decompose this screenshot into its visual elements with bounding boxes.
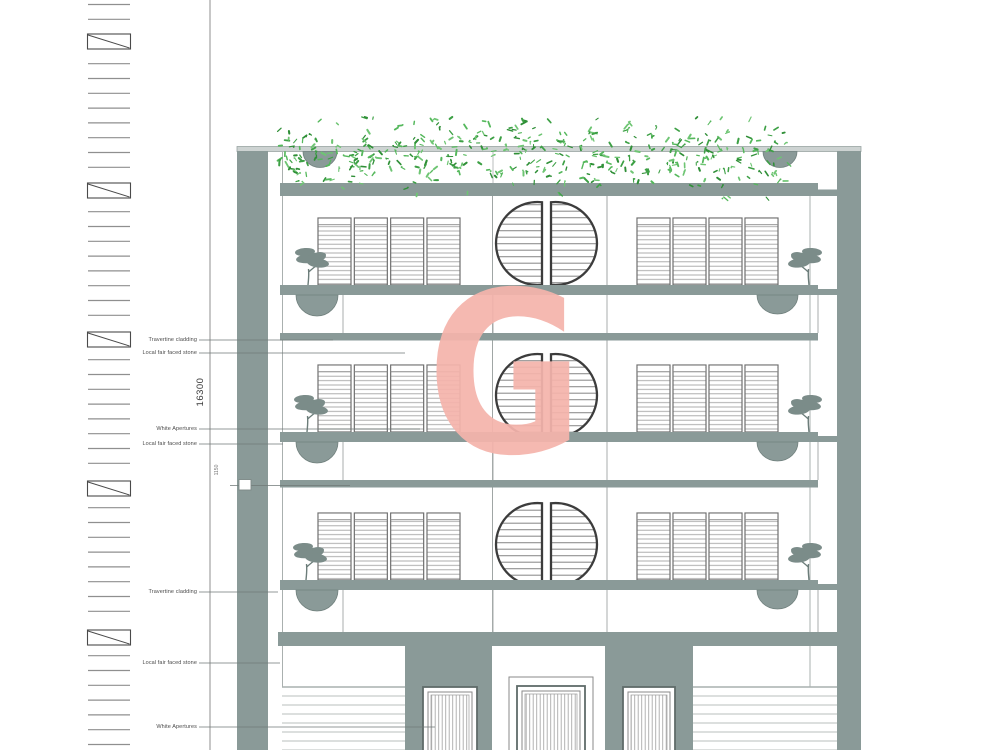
louvered-window (318, 513, 460, 580)
section-scale-ladder (88, 5, 131, 745)
shutter-panel (637, 365, 670, 432)
material-label: Travertine cladding (0, 589, 197, 595)
material-label: White Apertures (0, 426, 197, 432)
entrance-door (423, 687, 477, 750)
shutter-panel (745, 513, 778, 580)
entrance-door (623, 687, 675, 750)
balcony-tree (788, 542, 823, 580)
shutter-panel (709, 513, 742, 580)
shutter-panel (318, 365, 351, 432)
planter-bowl (296, 590, 338, 611)
shutter-panel (709, 218, 742, 285)
shutter-panel (709, 365, 742, 432)
detail-dimension: 1150 (214, 459, 222, 481)
balcony-tree (788, 247, 823, 285)
shutter-panel (637, 218, 670, 285)
louvered-window (637, 365, 778, 432)
louvered-window (637, 218, 778, 285)
planter-bowl (757, 295, 798, 314)
circular-window (496, 503, 597, 586)
material-label: Local fair faced stone (0, 660, 197, 666)
material-label: White Apertures (0, 724, 197, 730)
planter-bowl (757, 442, 798, 461)
planter-bowl (296, 295, 338, 316)
entrance-door (509, 677, 593, 750)
shutter-panel (391, 218, 424, 285)
shutter-panel (427, 513, 460, 580)
material-label: Travertine cladding (0, 337, 197, 343)
planter-bowl (296, 442, 338, 463)
shutter-panel (745, 365, 778, 432)
material-label: Local fair faced stone (0, 350, 197, 356)
watermark-logo-g: G (427, 245, 583, 506)
overall-height-dimension: 16300 (195, 372, 207, 412)
shutter-panel (318, 513, 351, 580)
shutter-panel (637, 513, 670, 580)
shutter-panel (354, 218, 387, 285)
elevation-drawing-page: G Travertine claddingLocal fair faced st… (0, 0, 1000, 750)
planter-bowl (763, 152, 797, 168)
shutter-panel (673, 365, 706, 432)
material-label: Local fair faced stone (0, 441, 197, 447)
level-marker-tag (239, 480, 251, 491)
shutter-panel (745, 218, 778, 285)
louvered-window (637, 513, 778, 580)
shutter-panel (391, 513, 424, 580)
balcony-tree (788, 394, 823, 432)
shutter-panel (673, 513, 706, 580)
shutter-panel (354, 513, 387, 580)
planter-bowl (757, 590, 798, 609)
shutter-panel (318, 218, 351, 285)
shutter-panel (354, 365, 387, 432)
shutter-panel (673, 218, 706, 285)
shutter-panel (391, 365, 424, 432)
elevation-drawing-canvas: G (0, 0, 1000, 750)
